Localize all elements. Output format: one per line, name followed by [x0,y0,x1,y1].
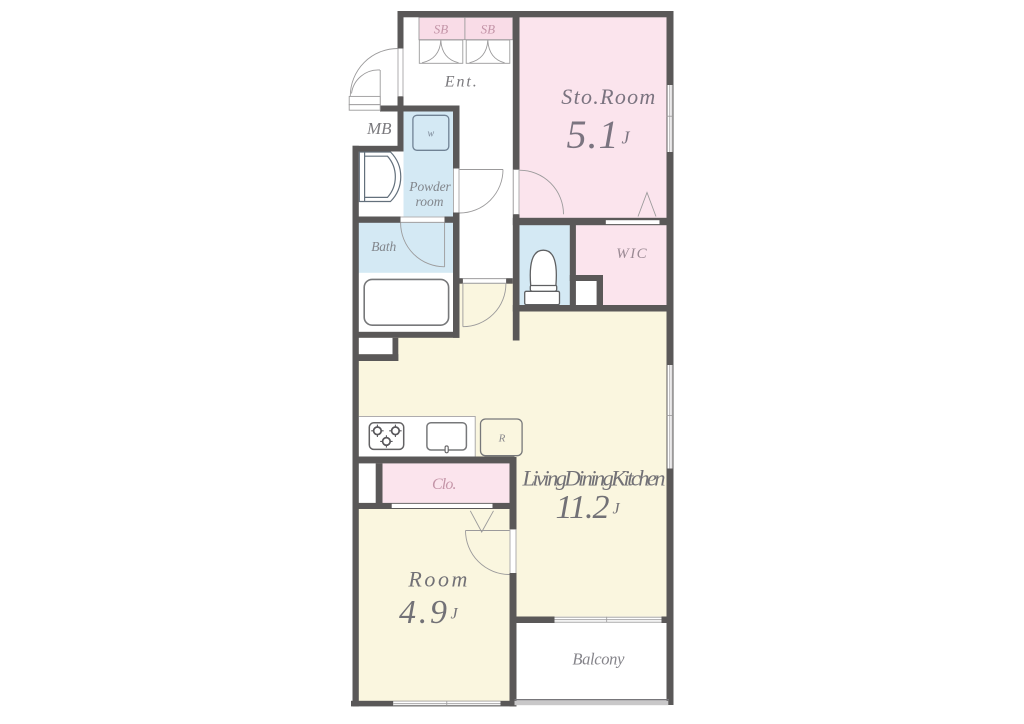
svg-text:Room: Room [407,567,467,592]
svg-text:5.1: 5.1 [567,112,619,157]
svg-text:4.9: 4.9 [399,594,447,631]
svg-text:Sto.Room: Sto.Room [561,84,655,109]
svg-text:11.2: 11.2 [556,489,610,526]
svg-text:Bath: Bath [371,239,396,254]
svg-text:J: J [613,501,621,518]
svg-text:MB: MB [366,119,392,138]
svg-text:LivingDiningKitchen: LivingDiningKitchen [522,466,666,491]
svg-text:WIC: WIC [616,246,647,262]
svg-text:room: room [416,194,444,209]
svg-text:Ent.: Ent. [444,74,477,91]
svg-text:Powder: Powder [408,179,451,194]
svg-text:R: R [498,433,506,445]
svg-text:Balcony: Balcony [572,649,625,668]
svg-text:SB: SB [481,21,496,36]
svg-text:Clo.: Clo. [432,476,457,493]
svg-text:w: w [427,128,434,139]
svg-text:J: J [622,128,631,148]
svg-text:SB: SB [434,21,449,36]
svg-text:J: J [451,606,459,623]
